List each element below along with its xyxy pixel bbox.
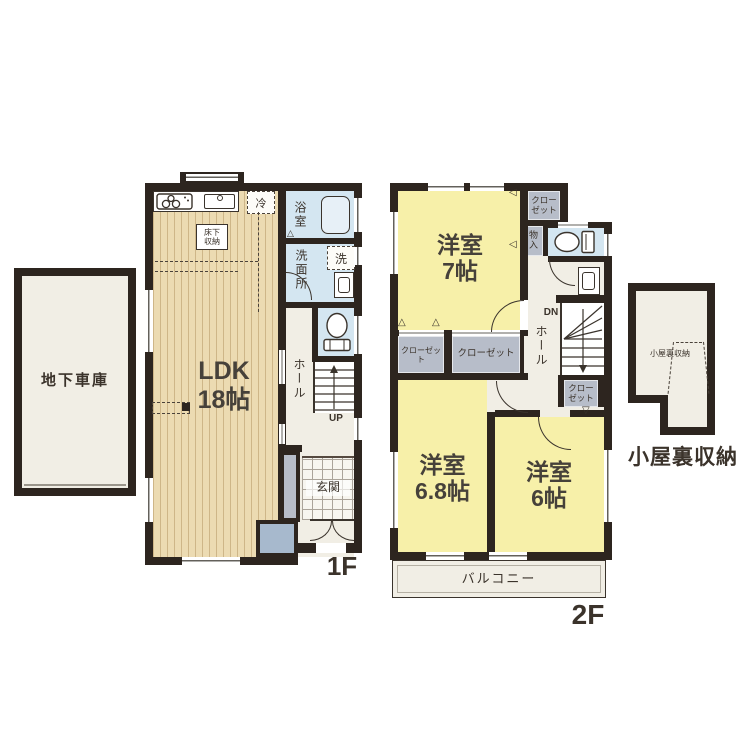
folding-door-marker: △ <box>432 318 440 328</box>
window <box>558 222 588 228</box>
folding-door-marker: △ <box>287 229 294 238</box>
toilet-icon-2f <box>551 230 597 254</box>
wall <box>598 380 604 407</box>
ldk-name: LDK <box>198 357 249 386</box>
entry-box <box>260 524 294 553</box>
window <box>354 418 362 440</box>
bedroom6-label: 洋室 6帖 <box>498 450 600 520</box>
kitchen-dash-line <box>155 261 258 262</box>
attic-label: 小屋裏収納 <box>620 445 746 471</box>
kitchen-dash-line <box>155 271 238 272</box>
shoe-cabinet <box>284 455 296 518</box>
wall <box>286 238 354 244</box>
window <box>428 183 464 191</box>
wall <box>543 226 548 256</box>
floorplan-canvas: 地下車庫 冷 床下 収納 LDK <box>0 0 750 750</box>
floor-label-2f: 2F <box>562 600 614 630</box>
underfloor-storage-label: 床下 収納 <box>196 224 228 250</box>
bedroom68-label: 洋室 6.8帖 <box>398 443 487 513</box>
window <box>470 183 504 191</box>
window <box>354 247 362 265</box>
closet-mid-label: クローゼット <box>452 347 520 362</box>
washing-machine-box: 洗 <box>327 246 355 270</box>
closet-top-right-label: クロー ゼット <box>528 192 560 219</box>
window <box>354 198 362 232</box>
wall <box>556 295 604 303</box>
window <box>186 174 238 181</box>
window <box>604 450 612 522</box>
wall <box>444 336 452 373</box>
toilet-icon-1f <box>322 312 352 354</box>
window <box>182 557 240 565</box>
stove-icon <box>156 193 193 210</box>
window <box>354 316 362 354</box>
dn-label: DN <box>538 306 564 319</box>
hall-label-1f: ホール <box>291 358 308 400</box>
wall <box>390 373 528 380</box>
entrance-step-line <box>302 456 354 458</box>
wall <box>487 412 495 552</box>
balcony-label: バルコニー <box>392 562 606 596</box>
window <box>426 552 464 560</box>
folding-door-marker: ▽ <box>582 406 590 416</box>
fridge-box: 冷 <box>247 191 275 214</box>
bedroom7-label: 洋室 7帖 <box>408 224 512 292</box>
folding-door-marker: ◁ <box>509 188 517 198</box>
stairs-2f <box>562 303 604 375</box>
stairs-1f <box>315 362 354 413</box>
sliding-opening <box>279 424 285 444</box>
ldk-size: 18帖 <box>198 386 251 415</box>
window <box>604 234 612 256</box>
window <box>489 552 527 560</box>
window <box>390 452 398 528</box>
faucet-icon <box>217 195 223 201</box>
garage-label: 地下車庫 <box>22 366 128 396</box>
washbasin-bowl <box>582 272 595 290</box>
window <box>390 212 398 274</box>
hall-label-2f: ホール <box>533 325 550 367</box>
entrance-label: 玄関 <box>306 480 350 496</box>
kitchen-dash-line <box>258 212 259 312</box>
2f-notch-carve <box>568 166 612 222</box>
folding-door-marker: △ <box>398 318 406 328</box>
floor-label-1f: 1F <box>318 553 366 581</box>
attic-ladder-dash <box>676 342 702 343</box>
storage-label: 物入 <box>527 230 540 250</box>
closet-left-label: クローゼット <box>398 348 444 362</box>
window <box>145 290 153 352</box>
closet-under-stairs-label: クロー ゼット <box>564 381 598 406</box>
window <box>145 478 153 522</box>
ldk-label: LDK 18帖 <box>158 350 290 422</box>
garage-shutter-line <box>24 484 126 486</box>
up-label: UP <box>321 412 351 425</box>
washbasin-bowl <box>338 277 350 293</box>
bath-label: 浴室 <box>292 201 309 229</box>
folding-door-opening <box>399 330 444 336</box>
bathtub-icon <box>321 196 350 234</box>
attic-inner-label: 小屋裏収納 <box>640 348 700 360</box>
